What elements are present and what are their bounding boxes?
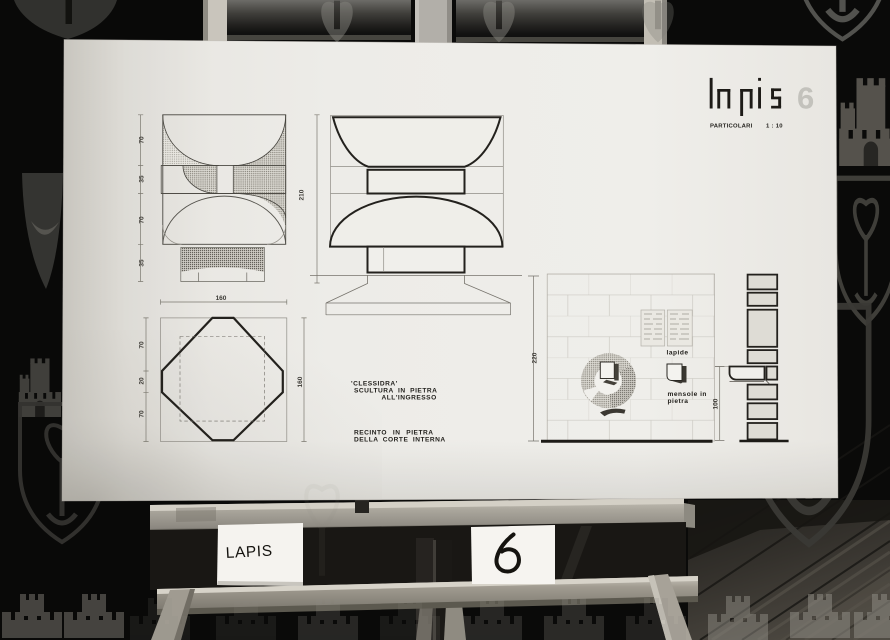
svg-text:6: 6: [797, 81, 814, 116]
svg-text:160: 160: [216, 295, 227, 302]
svg-text:RECINTO IN PIETRA: RECINTO IN PIETRA: [354, 430, 434, 437]
svg-text:SCULTURA IN PIETRA: SCULTURA IN PIETRA: [354, 387, 437, 394]
svg-text:160: 160: [297, 376, 304, 387]
svg-text:1 : 10: 1 : 10: [766, 124, 783, 130]
svg-text:lapide: lapide: [667, 350, 689, 357]
svg-text:70: 70: [139, 341, 146, 349]
svg-text:220: 220: [532, 352, 539, 363]
svg-text:pietra: pietra: [668, 398, 689, 405]
svg-text:PARTICOLARI: PARTICOLARI: [710, 124, 753, 130]
svg-text:210: 210: [299, 189, 306, 200]
svg-text:70: 70: [139, 136, 146, 144]
svg-text:ALL'INGRESSO: ALL'INGRESSO: [382, 394, 437, 401]
svg-text:20: 20: [139, 377, 146, 385]
svg-text:35: 35: [139, 175, 146, 183]
svg-text:'CLESSIDRA': 'CLESSIDRA': [351, 380, 398, 387]
svg-text:DELLA CORTE INTERNA: DELLA CORTE INTERNA: [354, 437, 446, 444]
svg-text:mensole in: mensole in: [668, 391, 707, 398]
svg-text:LAPIS: LAPIS: [225, 543, 273, 562]
svg-text:70: 70: [139, 410, 146, 418]
svg-text:100: 100: [713, 398, 720, 409]
svg-text:35: 35: [139, 259, 146, 267]
svg-text:70: 70: [139, 216, 146, 224]
